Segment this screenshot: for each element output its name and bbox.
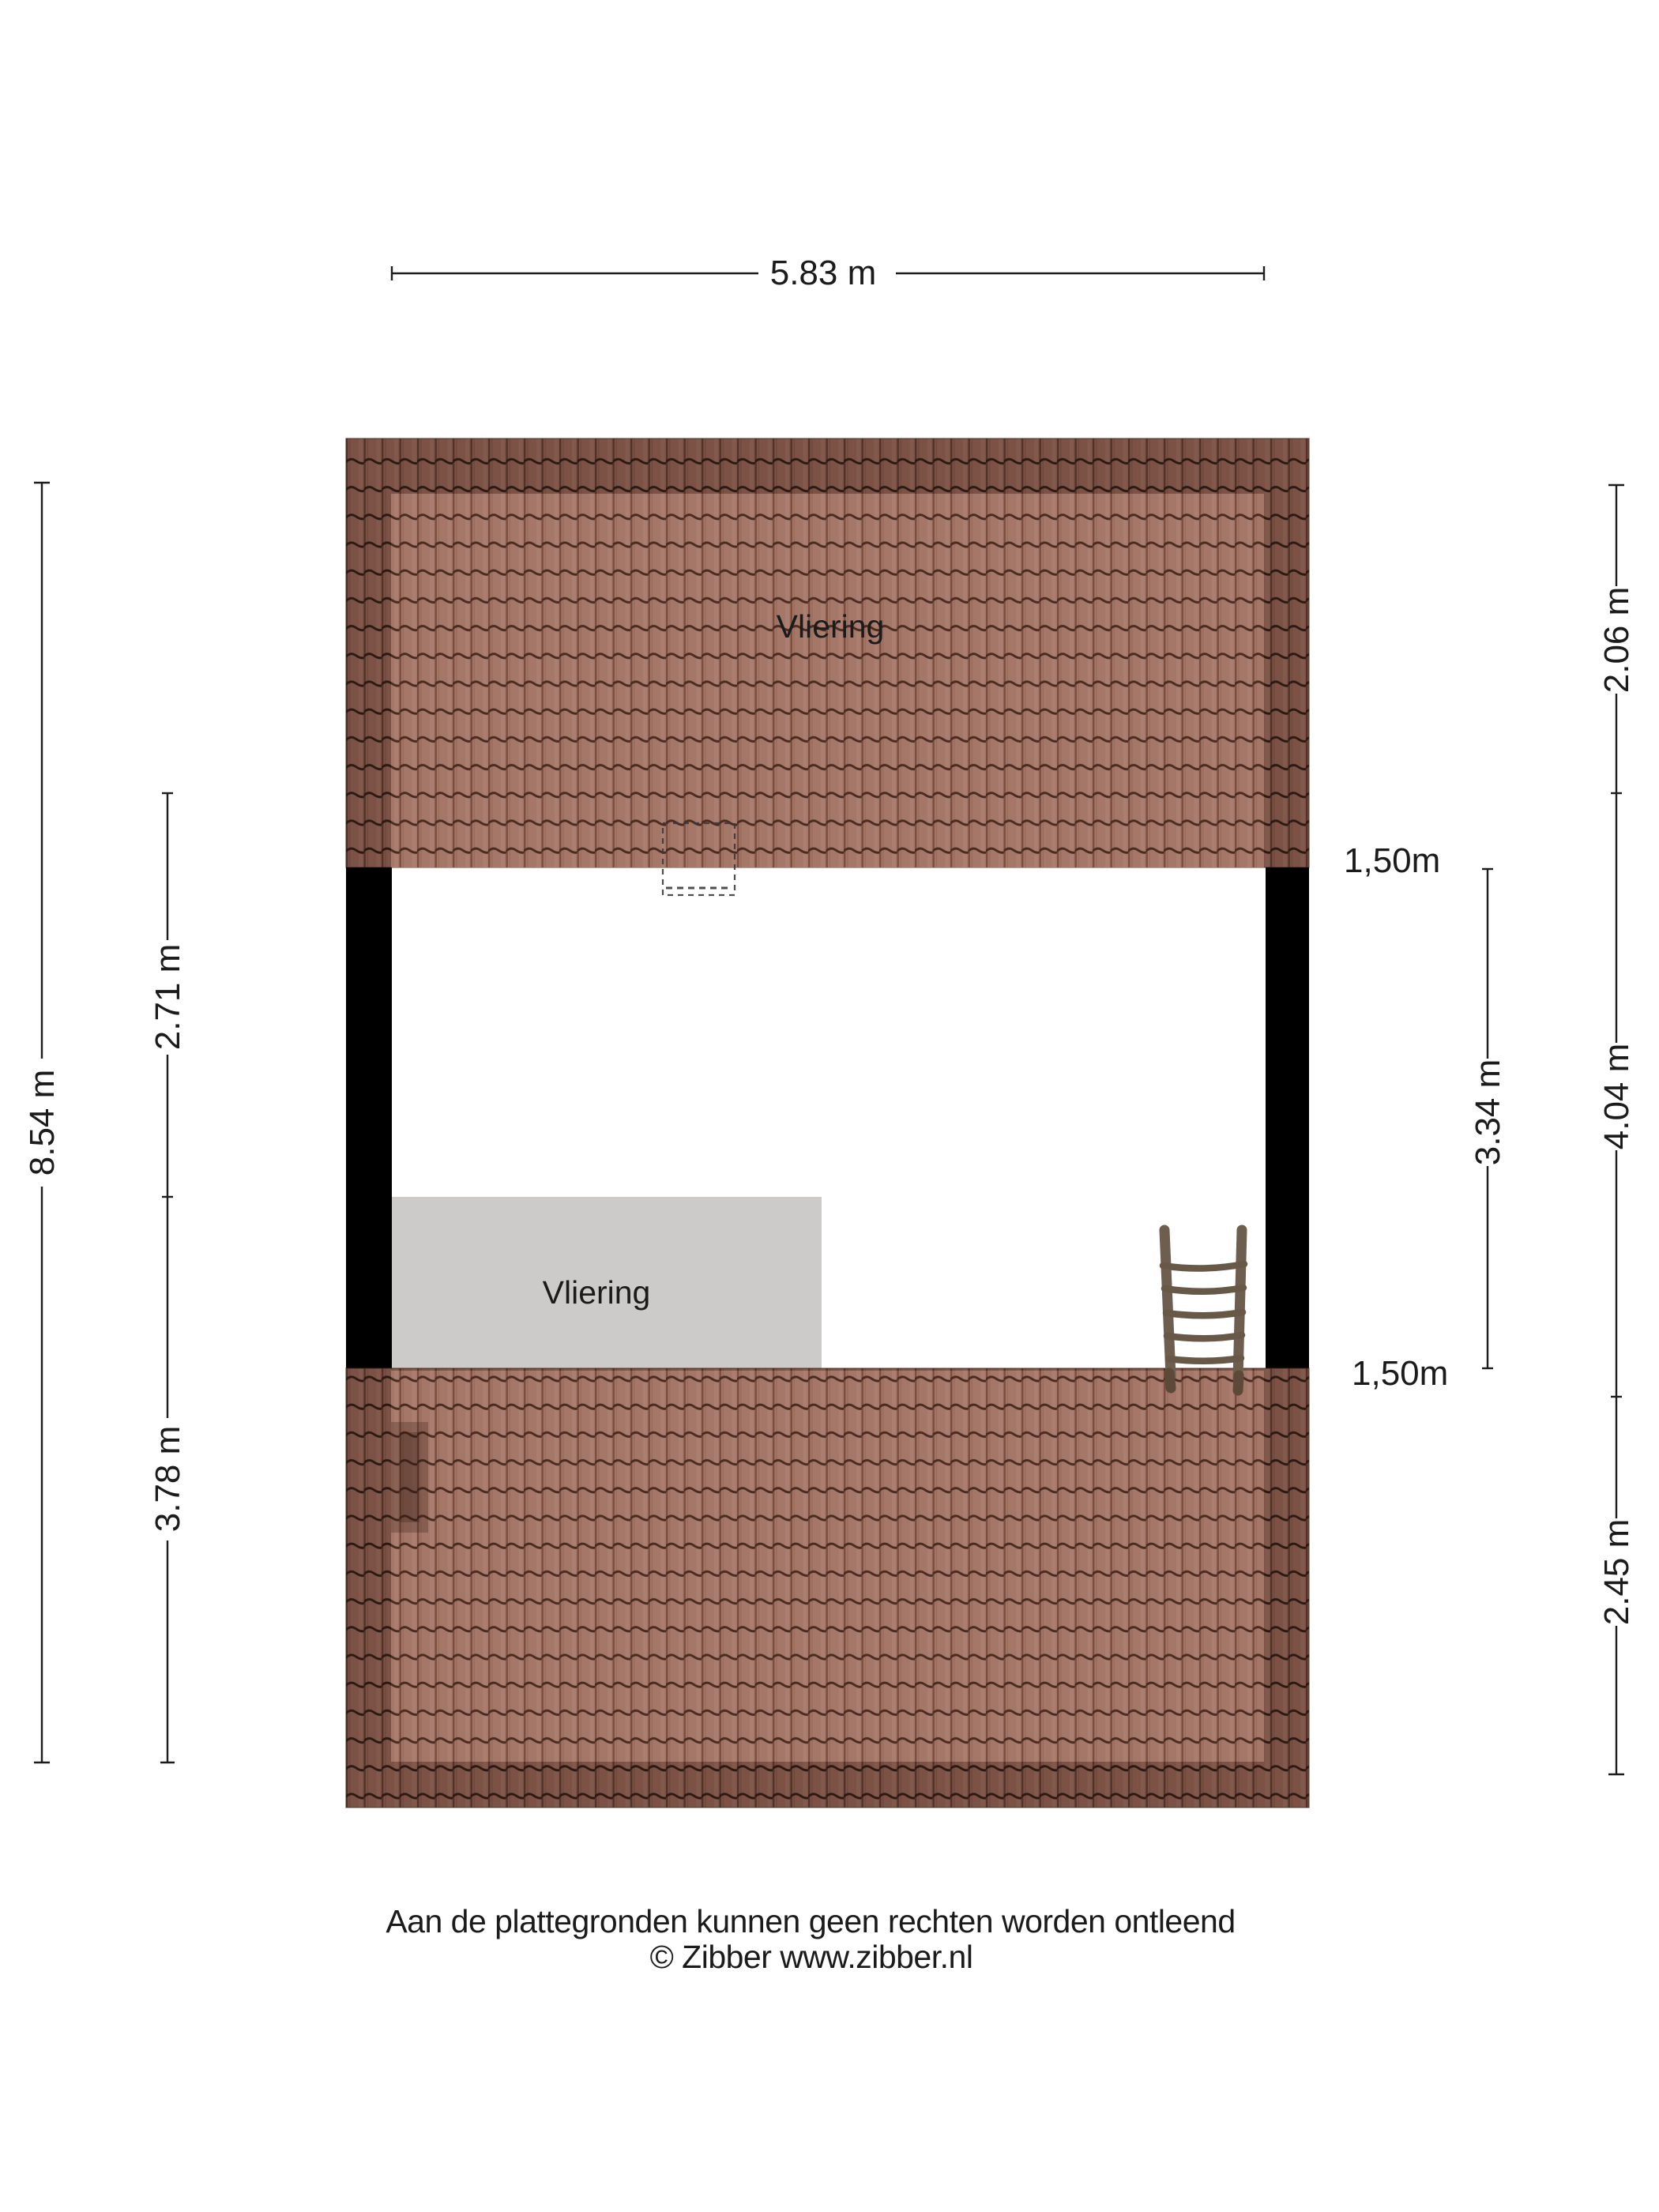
svg-text:1,50m: 1,50m — [1352, 1354, 1448, 1393]
svg-text:2.06 m: 2.06 m — [1597, 587, 1636, 694]
svg-text:2.71 m: 2.71 m — [149, 944, 187, 1051]
svg-text:5.83 m: 5.83 m — [770, 254, 877, 292]
svg-text:Vliering: Vliering — [543, 1274, 651, 1311]
svg-text:1,50m: 1,50m — [1344, 841, 1440, 880]
svg-text:Aan de plattegronden kunnen ge: Aan de plattegronden kunnen geen rechten… — [386, 1903, 1235, 1939]
svg-text:Vliering: Vliering — [777, 608, 885, 645]
svg-text:© Zibber www.zibber.nl: © Zibber www.zibber.nl — [650, 1939, 973, 1975]
svg-text:8.54 m: 8.54 m — [23, 1070, 62, 1176]
svg-text:4.04 m: 4.04 m — [1597, 1044, 1636, 1150]
svg-text:3.34 m: 3.34 m — [1469, 1059, 1507, 1166]
svg-text:2.45 m: 2.45 m — [1597, 1519, 1636, 1626]
svg-text:3.78 m: 3.78 m — [149, 1426, 187, 1533]
